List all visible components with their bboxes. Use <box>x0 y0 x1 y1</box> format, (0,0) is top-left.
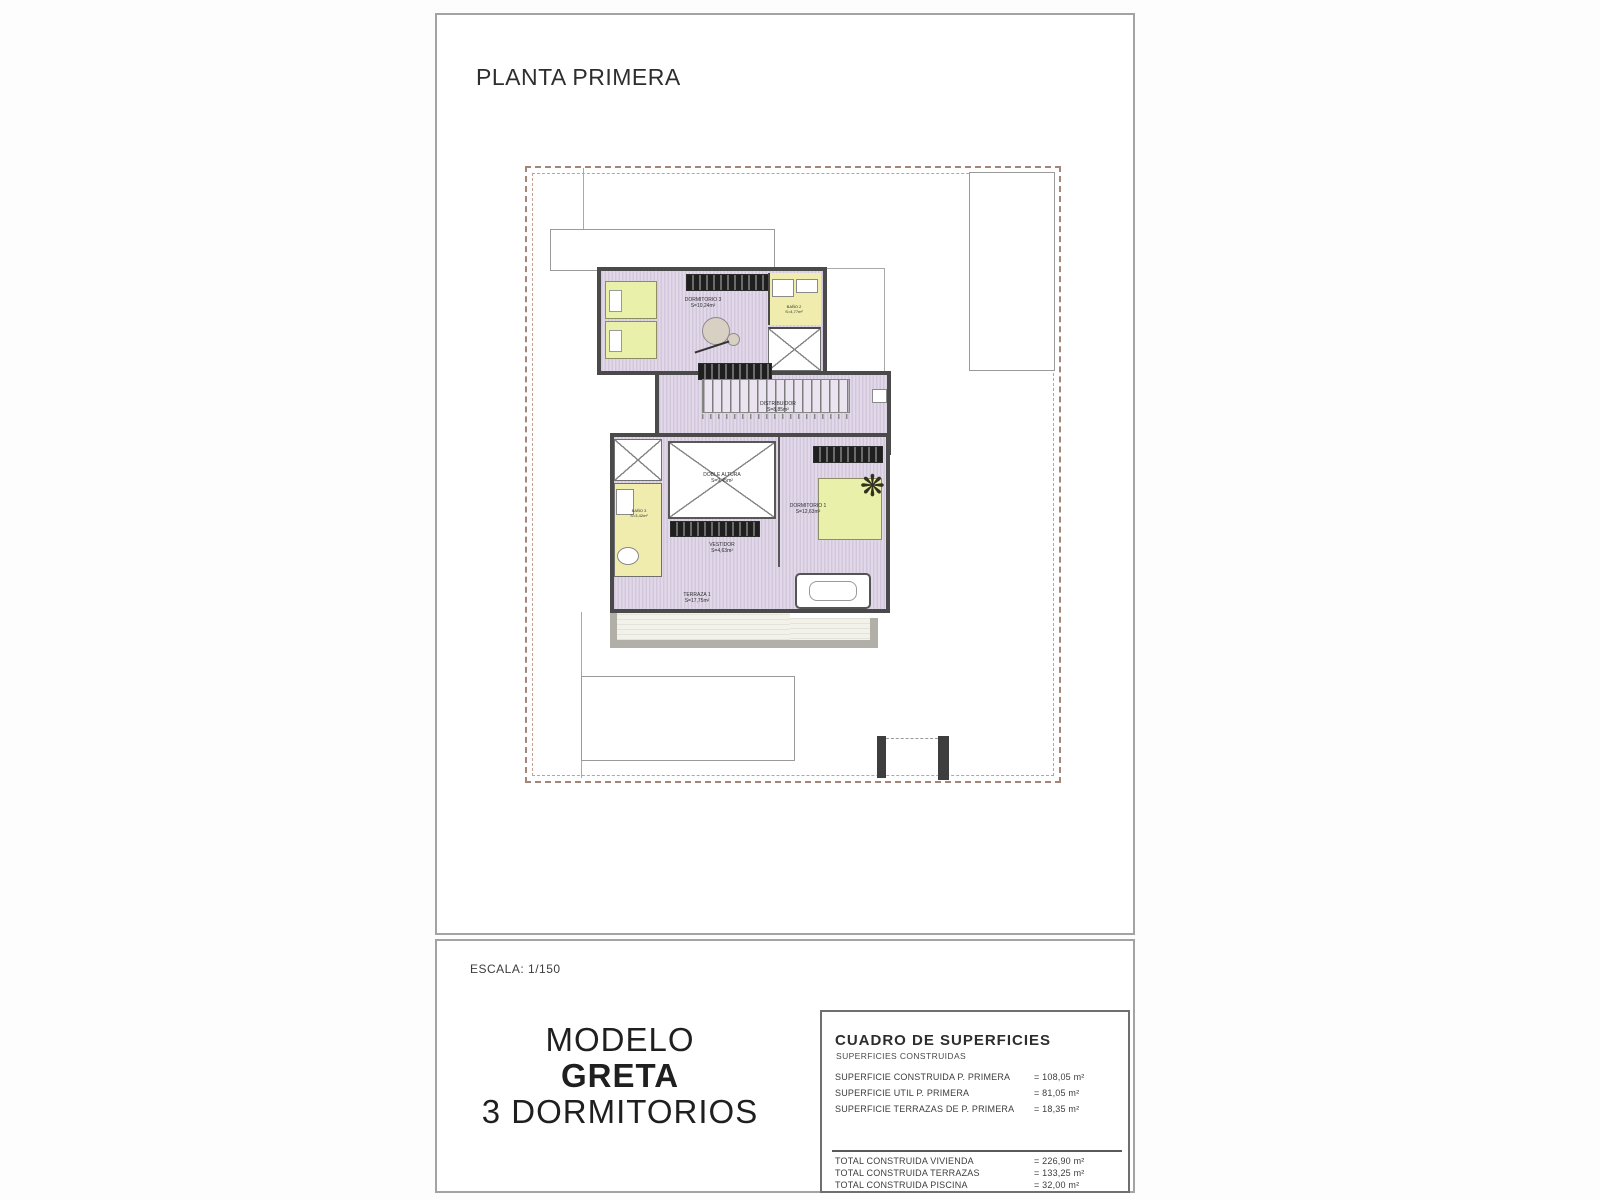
lower-roof-outline <box>581 676 795 761</box>
surfaces-table-title: CUADRO DE SUPERFICIES <box>835 1032 1051 1049</box>
room-label-bano-3: BAÑO 3S=3,42m² <box>630 508 647 518</box>
table-divider <box>832 1150 1122 1152</box>
twin-bed <box>605 321 657 359</box>
porch-roof-outline <box>550 229 775 271</box>
table-row: SUPERFICIE UTIL P. PRIMERA = 81,05 m² <box>835 1088 1120 1098</box>
stool <box>727 333 740 346</box>
stair-ticks <box>702 414 850 419</box>
twin-bed <box>605 281 657 319</box>
room-label-terraza-1: TERRAZA 1S=17,75m² <box>683 592 710 604</box>
floor-plan: ❋ DORMITORIO 3S=10,24m² BAÑO 2S=4,77m² D… <box>0 0 1600 1200</box>
room-label-vestidor: VESTIDORS=4,63m² <box>709 542 735 554</box>
bathtub-inner <box>809 581 857 601</box>
shaft <box>872 389 887 403</box>
table-total-row: TOTAL CONSTRUIDA PISCINA = 32,00 m² <box>835 1180 1120 1190</box>
shower <box>768 327 821 371</box>
gate-post <box>877 736 886 778</box>
room-label-dormitorio-1: DORMITORIO 1S=12,63m² <box>790 503 827 515</box>
shower <box>614 439 662 481</box>
model-line-1: MODELO <box>455 1022 785 1058</box>
gate-line <box>886 738 938 739</box>
double-bed: ❋ <box>818 478 882 540</box>
side-annex-outline <box>969 172 1055 371</box>
sink <box>772 279 794 297</box>
table-row: SUPERFICIE TERRAZAS DE P. PRIMERA = 18,3… <box>835 1104 1120 1114</box>
roof-outline-line <box>825 268 885 269</box>
wardrobe <box>698 363 772 380</box>
room-label-distribuidor: DISTRIBUIDORS=8,85m² <box>760 401 796 413</box>
model-line-2: GRETA <box>455 1058 785 1094</box>
model-line-3: 3 DORMITORIOS <box>455 1094 785 1130</box>
wardrobe <box>670 521 760 537</box>
pillow <box>609 330 622 352</box>
wardrobe <box>686 274 770 291</box>
room-label-dormitorio-3: DORMITORIO 3S=10,24m² <box>685 297 722 309</box>
table-total-row: TOTAL CONSTRUIDA TERRAZAS = 133,25 m² <box>835 1168 1120 1178</box>
scale-label: ESCALA: 1/150 <box>470 962 561 976</box>
plant-icon: ❋ <box>860 469 885 504</box>
wardrobe <box>813 446 883 463</box>
plot-line <box>583 168 584 230</box>
model-name-block: MODELO GRETA 3 DORMITORIOS <box>455 1022 785 1130</box>
table-row: SUPERFICIE CONSTRUIDA P. PRIMERA = 108,0… <box>835 1072 1120 1082</box>
terrace-strip <box>790 618 878 648</box>
room-label-doble-altura: DOBLE ALTURAS=9,45m² <box>703 472 740 484</box>
gate-post <box>938 736 949 780</box>
surfaces-table-subtitle: SUPERFICIES CONSTRUIDAS <box>836 1051 966 1061</box>
toilet <box>617 547 639 565</box>
toilet <box>796 279 818 293</box>
table-total-row: TOTAL CONSTRUIDA VIVIENDA = 226,90 m² <box>835 1156 1120 1166</box>
surfaces-table: CUADRO DE SUPERFICIES SUPERFICIES CONSTR… <box>820 1010 1130 1193</box>
room-label-bano-2: BAÑO 2S=4,77m² <box>785 304 802 314</box>
partition-wall <box>778 437 780 567</box>
pillow <box>609 290 622 312</box>
